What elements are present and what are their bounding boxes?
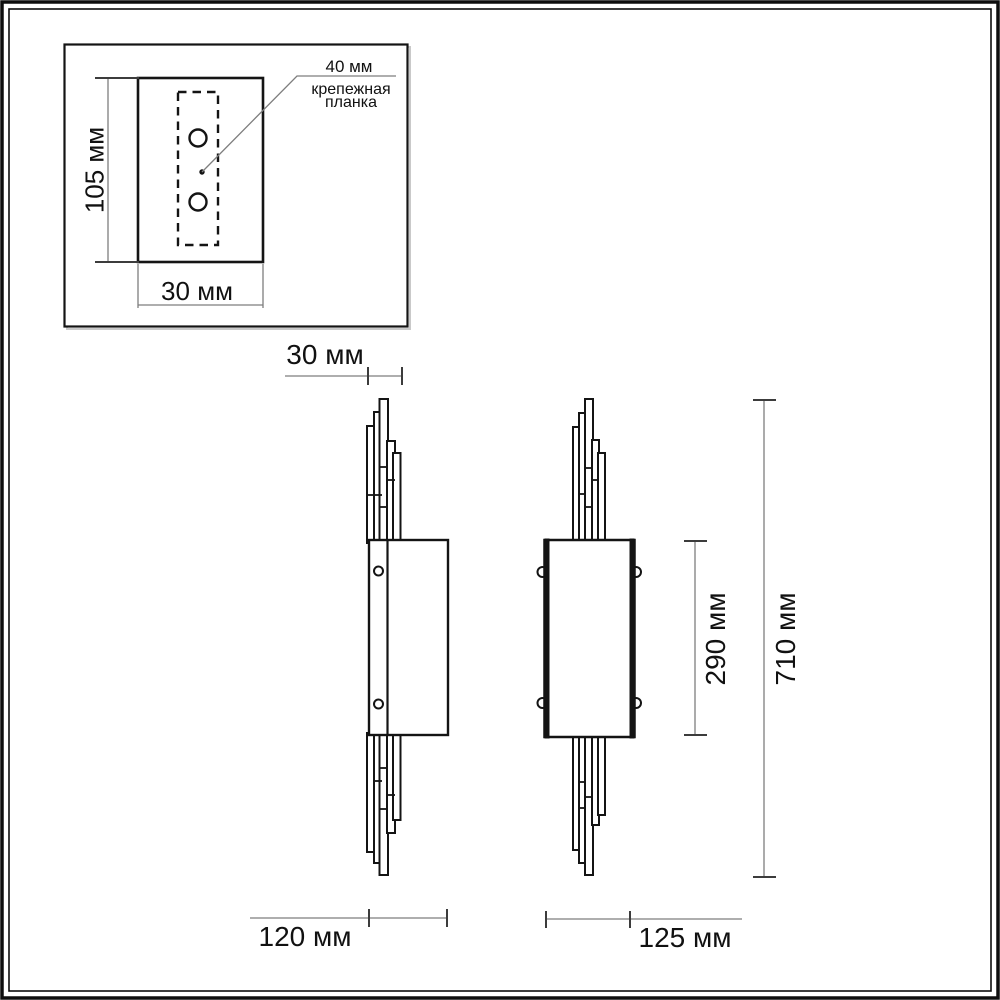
front-top-slats [573,399,605,544]
dimensions: 30 мм 120 мм 125 мм 290 мм 7 [250,339,801,953]
sconce-front-view [538,399,642,875]
callout-dim-label: 40 мм [325,57,372,76]
slat-depth-label: 30 мм [286,339,363,370]
inset-width-label: 30 мм [161,276,233,306]
drawing-canvas: 40 мм крепежная планка 105 мм 30 мм [0,0,1000,1000]
sconce-side-view [367,399,448,875]
width-dimension: 125 мм [545,911,742,953]
technical-drawing-page: 40 мм крепежная планка 105 мм 30 мм [0,0,1000,1000]
depth-dimension: 120 мм [250,909,447,952]
mounting-plate-inset: 40 мм крепежная планка 105 мм 30 мм [65,45,411,330]
front-bottom-slats [573,732,605,875]
screw-bottom [374,700,383,709]
side-bottom-slats [367,733,401,875]
slat-depth-dimension: 30 мм [285,339,403,385]
body-height-dimension: 290 мм [684,541,731,735]
screw-top [374,567,383,576]
inset-height-label: 105 мм [80,127,110,213]
side-top-slats [367,399,401,543]
total-height-label: 710 мм [770,593,801,686]
depth-label: 120 мм [259,921,352,952]
screw-hole-bottom [190,194,207,211]
slat [598,453,605,544]
screw-hole-top [190,130,207,147]
slat [393,733,401,820]
total-height-dimension: 710 мм [753,400,801,877]
width-label: 125 мм [639,922,732,953]
body-height-label: 290 мм [700,593,731,686]
slat [598,732,605,815]
callout-name-line2: планка [325,94,377,111]
front-body [545,540,635,737]
slat [393,453,401,543]
